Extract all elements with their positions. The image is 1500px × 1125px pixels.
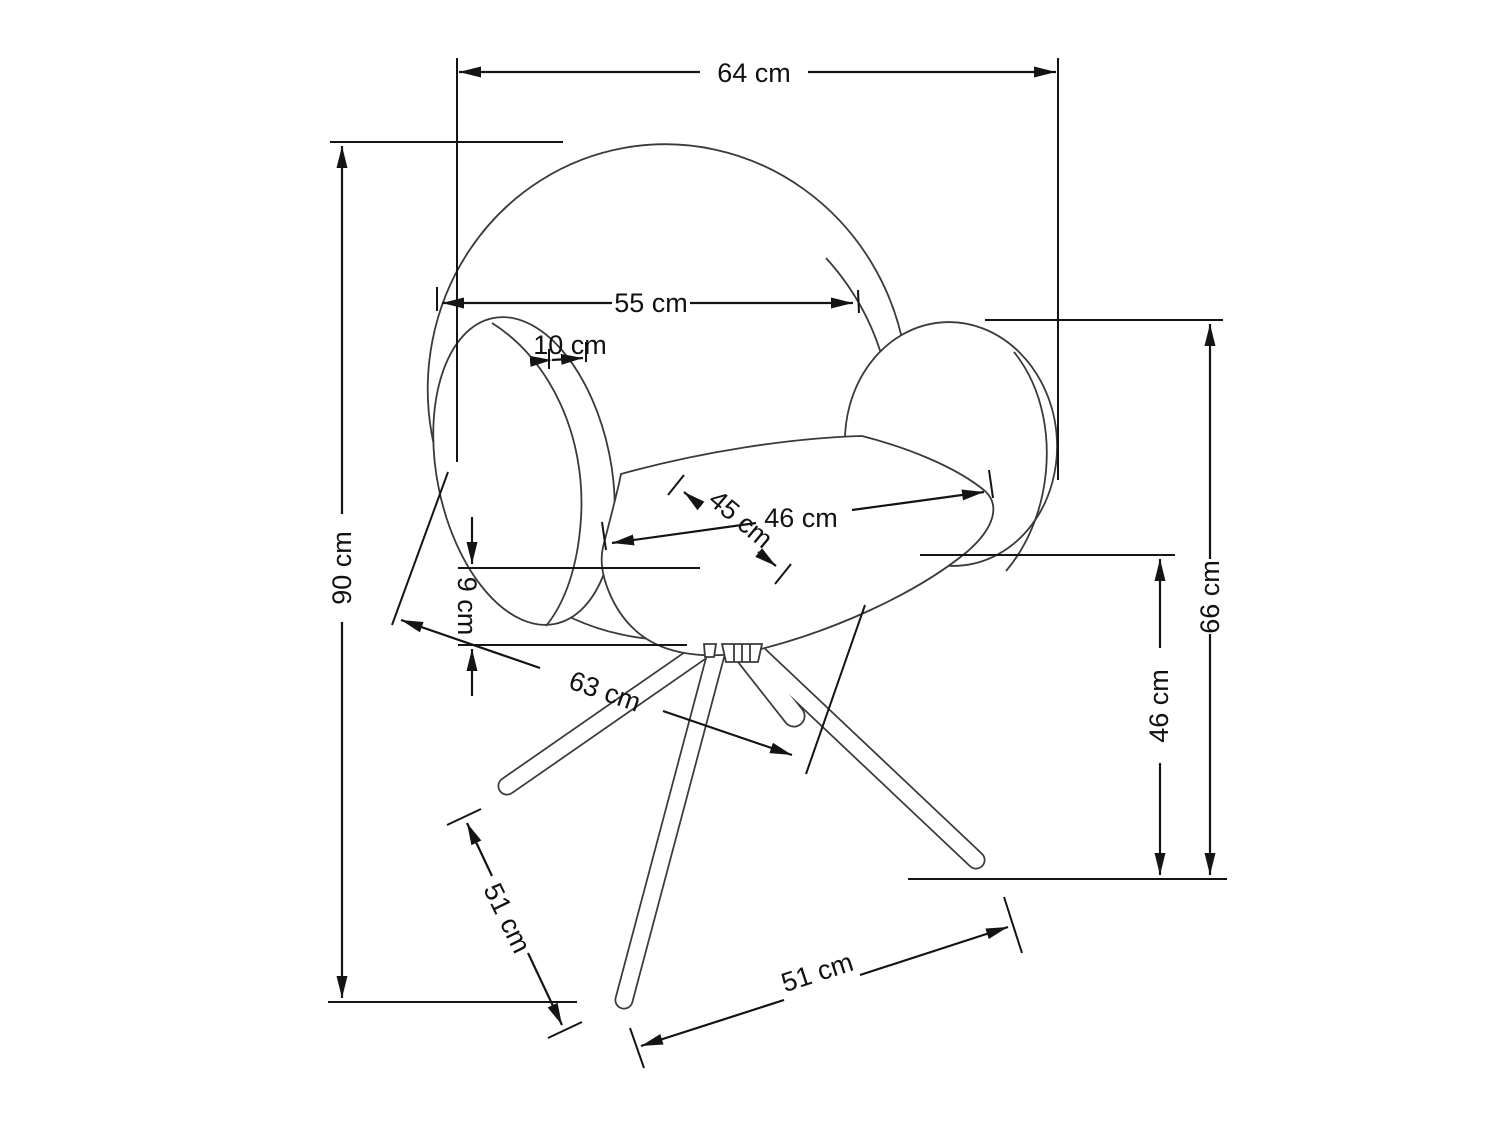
- dim-label-armrest-height: 66 cm: [1195, 560, 1225, 634]
- dim-label-leg-length: 51 cm: [477, 878, 536, 957]
- dim-base-width: 51 cm: [630, 897, 1022, 1068]
- dim-label-armrest-thickness: 10 cm: [533, 330, 607, 360]
- dim-label-seat-width: 46 cm: [764, 503, 838, 533]
- chair-drawing: [389, 106, 1066, 1000]
- leg-back-right: [758, 654, 976, 860]
- dim-label-seat-height: 46 cm: [1144, 669, 1174, 743]
- diagram-canvas: 64 cm 55 cm 10 cm 90 cm 9 cm 63 cm: [0, 0, 1500, 1125]
- dim-leg-length: 51 cm: [447, 809, 582, 1038]
- chair-dimension-diagram: 64 cm 55 cm 10 cm 90 cm 9 cm 63 cm: [0, 0, 1500, 1125]
- dim-label-cushion-thickness: 9 cm: [452, 577, 482, 636]
- dim-label-overall-width: 64 cm: [717, 58, 791, 88]
- legs: [507, 650, 976, 1000]
- dim-label-backrest-width: 55 cm: [614, 288, 688, 318]
- dim-label-overall-height: 90 cm: [327, 531, 357, 605]
- dim-label-base-width: 51 cm: [778, 947, 857, 998]
- leg-front-left: [507, 650, 703, 786]
- dim-seat-height: 46 cm: [920, 555, 1175, 875]
- seat-outline: [602, 436, 994, 655]
